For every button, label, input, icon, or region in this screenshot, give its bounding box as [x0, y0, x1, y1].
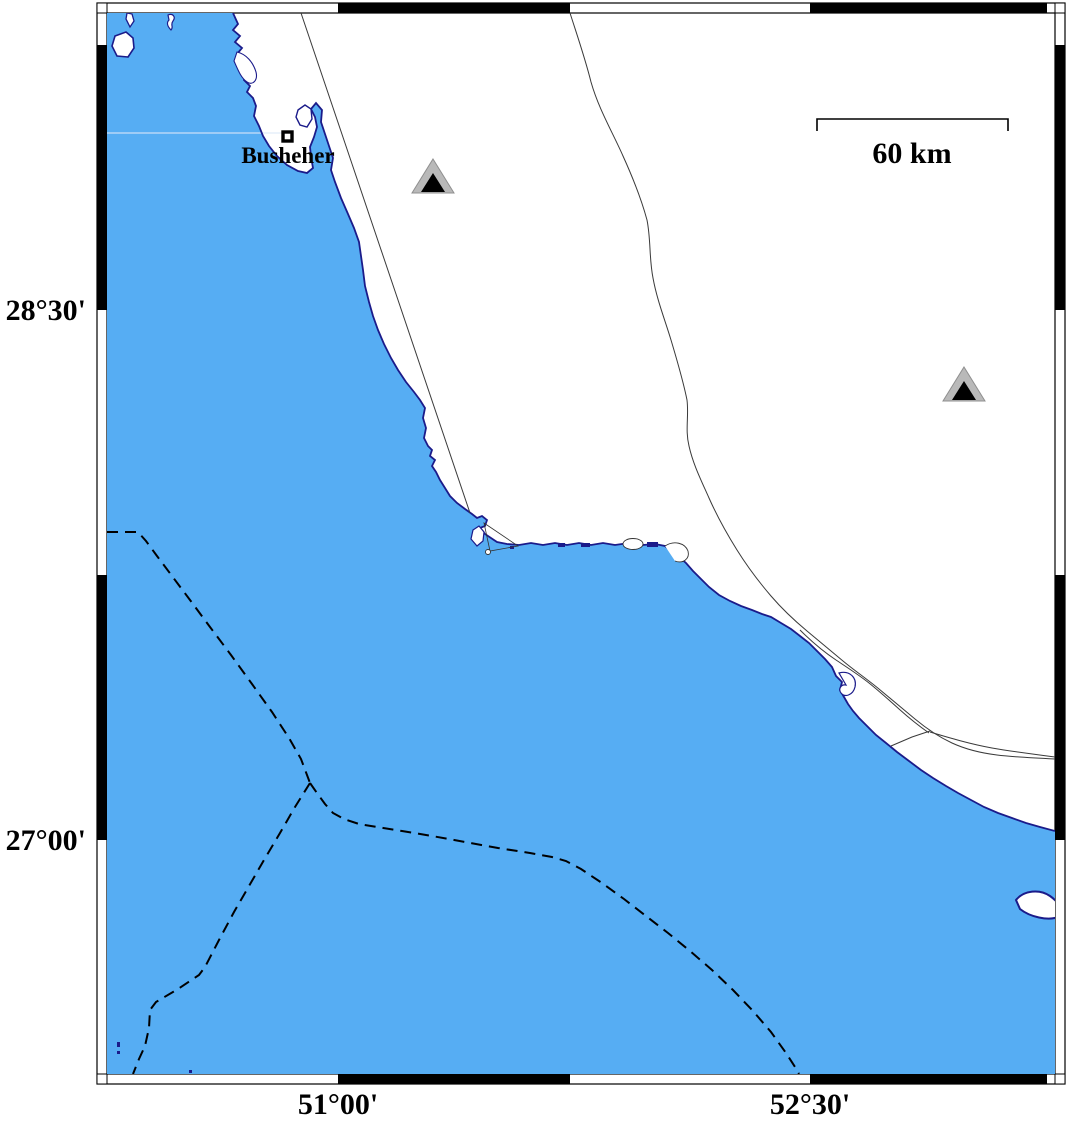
survey-point [486, 550, 491, 555]
islet [558, 543, 565, 547]
frame-segment [338, 1074, 570, 1084]
square-city-marker-icon [283, 132, 292, 141]
axis-label-latitude-bottom: 27°00' [6, 824, 86, 857]
axis-label-longitude-left: 51°00' [298, 1088, 378, 1121]
islet [117, 1051, 120, 1054]
scale-bar-label: 60 km [872, 137, 951, 170]
axis-label-longitude-right: 52°30' [770, 1088, 850, 1121]
frame-corner [1055, 1074, 1065, 1084]
frame-segment [810, 3, 1047, 13]
lagoon-outline [623, 539, 643, 550]
frame-segment [810, 1074, 1047, 1084]
frame-segment [338, 3, 570, 13]
frame-segment [1055, 575, 1065, 840]
frame-segment [97, 45, 107, 310]
frame-corner [97, 1074, 107, 1084]
map-figure: Busheher 60 km 28°30' 27°00' 51°00' 52°3… [0, 0, 1066, 1123]
axis-label-latitude-top: 28°30' [6, 294, 86, 327]
islet [647, 542, 658, 547]
islet [117, 1042, 120, 1047]
frame-corner [1055, 3, 1065, 13]
frame-segment [1055, 45, 1065, 310]
city-label: Busheher [241, 143, 334, 168]
islet [581, 543, 590, 547]
island [112, 32, 134, 57]
islet [189, 1070, 192, 1073]
frame-segment [97, 575, 107, 840]
frame-corner [97, 3, 107, 13]
map-canvas: Busheher 60 km 28°30' 27°00' 51°00' 52°3… [0, 0, 1066, 1123]
